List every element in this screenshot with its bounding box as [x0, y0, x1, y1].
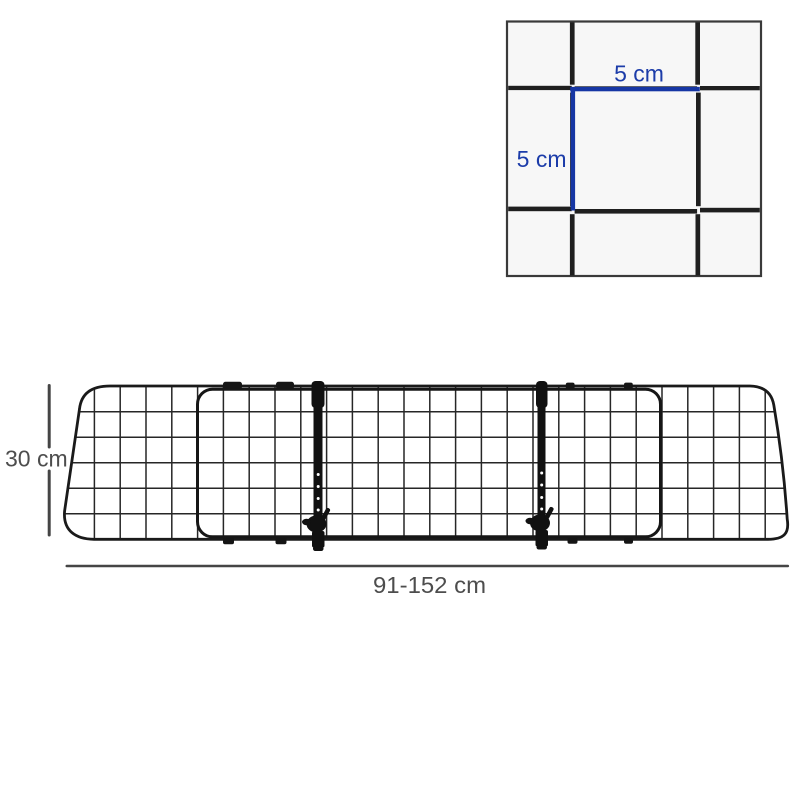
- svg-text:30 cm: 30 cm: [5, 446, 68, 472]
- svg-text:91-152 cm: 91-152 cm: [373, 572, 486, 598]
- svg-text:5 cm: 5 cm: [517, 146, 567, 172]
- svg-text:5 cm: 5 cm: [614, 61, 664, 87]
